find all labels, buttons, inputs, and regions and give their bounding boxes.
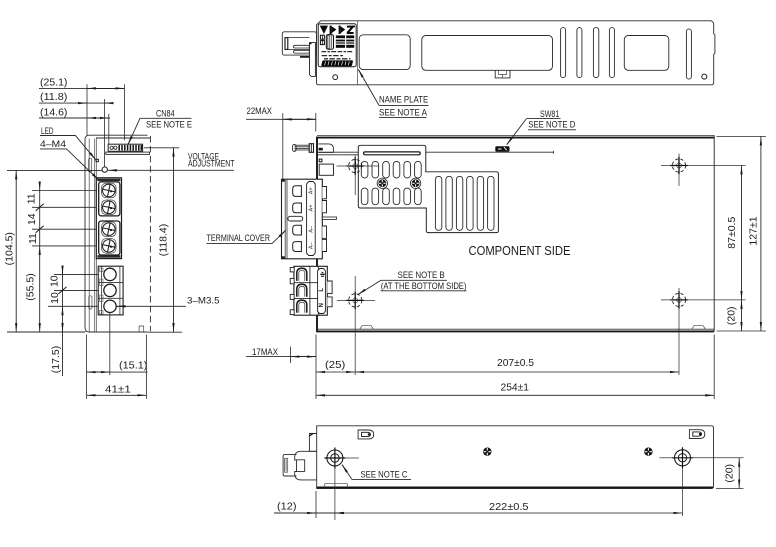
svg-text:87±0.5: 87±0.5 (726, 217, 738, 249)
svg-text:41±1: 41±1 (105, 384, 131, 396)
svg-text:SEE NOTE E: SEE NOTE E (146, 120, 192, 130)
svg-text:ADJUSTMENT: ADJUSTMENT (188, 159, 235, 169)
svg-text:17MAX: 17MAX (252, 347, 278, 357)
svg-text:SW81: SW81 (540, 109, 559, 119)
svg-text:SEE NOTE D: SEE NOTE D (528, 120, 575, 130)
svg-text:10: 10 (49, 275, 61, 287)
svg-text:A–: A– (308, 225, 314, 233)
svg-text:(118.4): (118.4) (157, 224, 169, 257)
svg-text:COMPONENT SIDE: COMPONENT SIDE (469, 243, 571, 258)
svg-text:(104.5): (104.5) (3, 232, 15, 265)
svg-text:N: N (319, 303, 325, 307)
svg-text:SEE NOTE C: SEE NOTE C (361, 469, 408, 479)
svg-text:4–M4: 4–M4 (40, 139, 66, 149)
svg-text:(20): (20) (726, 306, 738, 325)
svg-text:(15.1): (15.1) (119, 360, 147, 372)
svg-text:(17.5): (17.5) (50, 346, 62, 373)
svg-text:(AT THE BOTTOM SIDE): (AT THE BOTTOM SIDE) (381, 281, 467, 291)
svg-text:11: 11 (25, 193, 37, 204)
svg-text:(11.8): (11.8) (40, 91, 67, 103)
svg-text:(25.1): (25.1) (40, 77, 67, 89)
svg-text:(20): (20) (723, 464, 735, 483)
svg-text:(55.5): (55.5) (25, 273, 37, 300)
svg-text:10: 10 (49, 292, 61, 304)
svg-text:14: 14 (26, 213, 38, 225)
svg-text:NAME PLATE: NAME PLATE (379, 95, 428, 105)
svg-text:254±1: 254±1 (501, 381, 530, 393)
svg-text:TERMINAL COVER: TERMINAL COVER (207, 233, 271, 243)
svg-text:(25): (25) (325, 359, 345, 371)
svg-text:11: 11 (27, 233, 39, 244)
svg-text:207±0.5: 207±0.5 (497, 357, 534, 369)
svg-text:127±1: 127±1 (748, 216, 760, 245)
svg-text:SEE NOTE A: SEE NOTE A (379, 107, 427, 117)
svg-text:222±0.5: 222±0.5 (489, 501, 529, 513)
svg-text:22MAX: 22MAX (247, 106, 273, 116)
svg-text:LED: LED (41, 126, 54, 136)
svg-text:A+: A+ (308, 187, 314, 194)
svg-text:A–: A– (308, 241, 314, 249)
svg-text:3–M3.5: 3–M3.5 (187, 296, 220, 306)
svg-text:SEE NOTE B: SEE NOTE B (398, 270, 445, 280)
svg-text:CN84: CN84 (156, 109, 175, 119)
svg-text:L: L (319, 288, 325, 292)
svg-text:(12): (12) (277, 501, 297, 513)
svg-text:A+: A+ (308, 205, 314, 212)
svg-text:(14.6): (14.6) (40, 107, 67, 119)
